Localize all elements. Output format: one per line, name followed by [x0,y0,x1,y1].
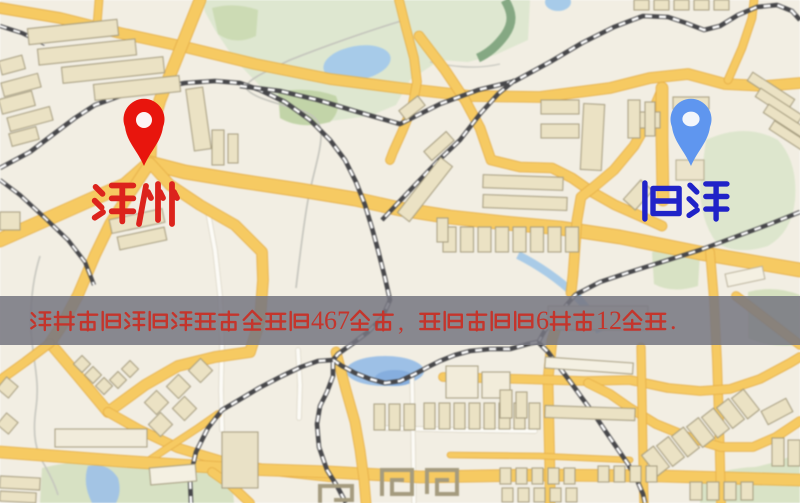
svg-text:,: , [398,310,404,336]
svg-text:6: 6 [536,306,549,335]
svg-text:12: 12 [596,306,622,335]
svg-text:.: . [670,306,677,335]
svg-text:467: 467 [311,306,350,335]
